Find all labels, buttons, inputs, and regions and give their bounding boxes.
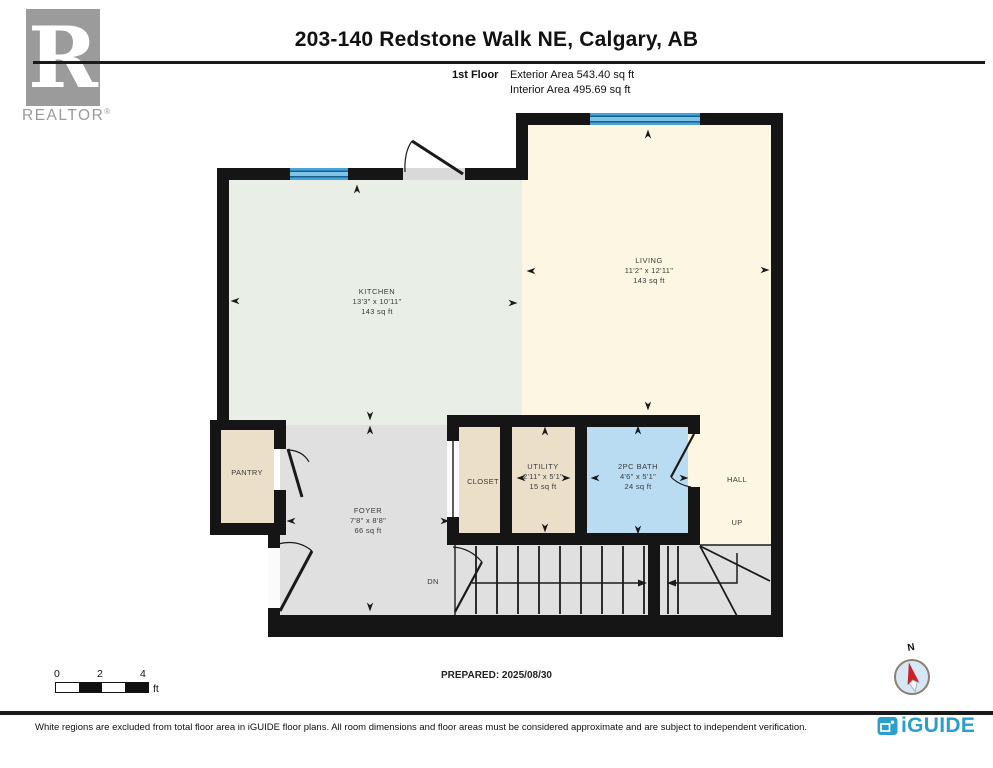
page-title: 203-140 Redstone Walk NE, Calgary, AB: [0, 28, 993, 52]
wall: [348, 168, 403, 180]
prepared-date: PREPARED: 2025/08/30: [0, 670, 993, 681]
hall-label: HALL: [727, 475, 747, 485]
bath-label: 2PC BATH 4'6" x 5'1" 24 sq ft: [618, 462, 658, 492]
entry-door-opening: [403, 168, 465, 180]
wall: [447, 533, 700, 545]
realtor-r-icon: R: [28, 8, 98, 107]
wall: [268, 615, 783, 637]
wall: [217, 168, 229, 426]
realtor-logo: R: [26, 9, 100, 106]
registered-mark: ®: [104, 107, 111, 116]
living-window: [590, 113, 700, 125]
wall: [210, 420, 221, 535]
foyer-label: FOYER 7'8" x 8'8" 66 sq ft: [350, 506, 386, 536]
wall: [274, 490, 286, 535]
footer-divider: [0, 711, 993, 715]
scale-bar: [55, 682, 149, 693]
stairs-up: [660, 545, 771, 615]
pantry-label: PANTRY: [231, 468, 263, 478]
up-label: UP: [731, 518, 742, 528]
kitchen-window: [290, 168, 348, 180]
compass-north-label: N: [907, 642, 916, 654]
iguide-camera-icon: [877, 716, 898, 736]
kitchen-label: KITCHEN 13'3" x 10'11" 143 sq ft: [353, 287, 402, 317]
dn-label: DN: [427, 577, 438, 587]
stairs-down: [455, 545, 648, 615]
wall: [268, 530, 280, 548]
living-label: LIVING 11'2" x 12'11" 143 sq ft: [625, 256, 673, 286]
wall: [274, 420, 286, 449]
interior-area: Interior Area 495.69 sq ft: [510, 84, 630, 96]
floor-label: 1st Floor: [452, 69, 498, 81]
iguide-logo: iGUIDE: [877, 714, 975, 738]
iguide-wordmark: iGUIDE: [901, 714, 975, 738]
footer-disclaimer: White regions are excluded from total fl…: [35, 722, 807, 733]
closet-label: CLOSET: [467, 477, 499, 487]
wall: [575, 427, 587, 539]
wall: [688, 487, 700, 545]
title-divider: [33, 61, 985, 64]
utility-label: UTILITY 2'11" x 5'1" 15 sq ft: [523, 462, 563, 492]
exterior-area: Exterior Area 543.40 sq ft: [510, 69, 634, 81]
realtor-wordmark: REALTOR®: [22, 107, 112, 125]
wall: [516, 113, 590, 125]
bath-door-gap: [688, 434, 700, 487]
wall: [500, 427, 512, 539]
closet-door-gap: [447, 441, 459, 517]
scale-unit: ft: [153, 683, 159, 695]
entry-door-gap: [268, 548, 280, 608]
wall: [771, 113, 783, 637]
floor-plan-page: R REALTOR® 203-140 Redstone Walk NE, Cal…: [0, 0, 993, 768]
wall: [447, 415, 700, 427]
compass-icon: N: [895, 642, 929, 694]
wall: [648, 545, 660, 617]
wall: [688, 415, 700, 434]
wall: [447, 415, 459, 441]
